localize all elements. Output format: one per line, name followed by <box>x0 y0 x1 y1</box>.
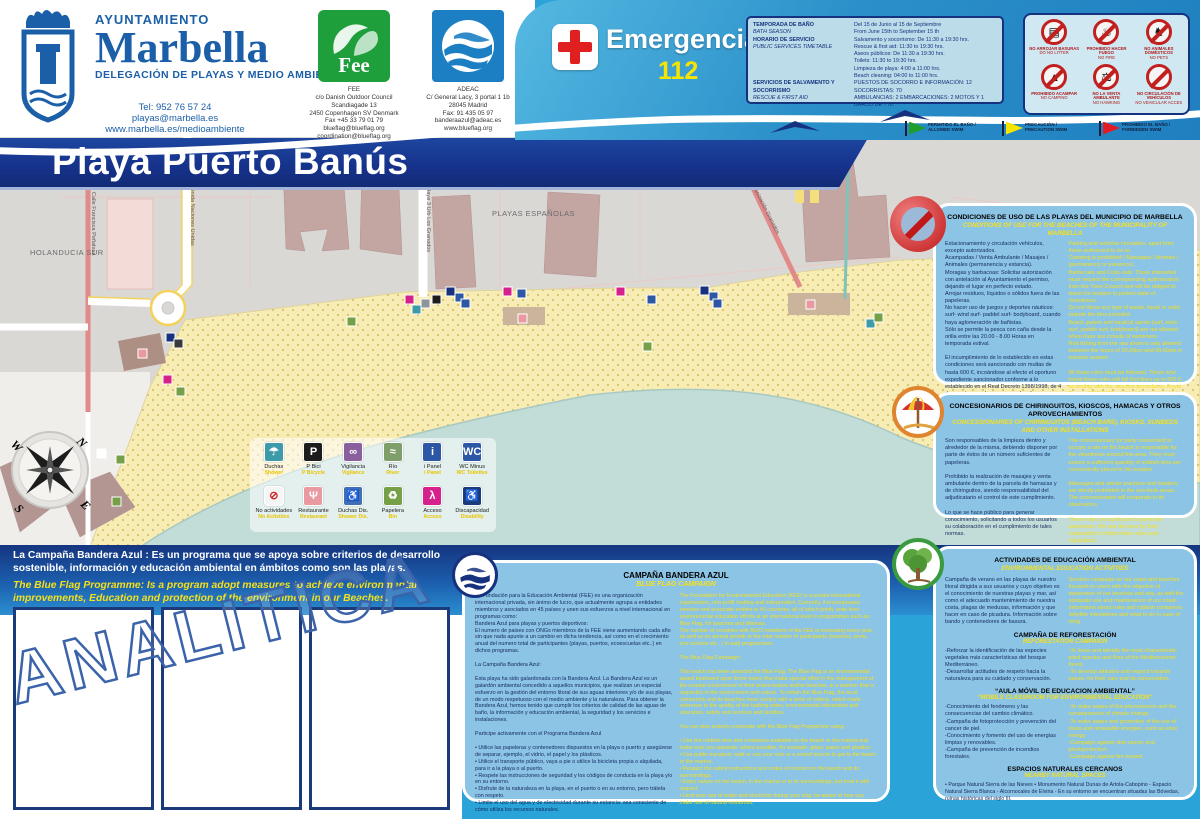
map-legend: ☂ Duchas ShowerP P Bici P Bicycle∞ Vigil… <box>250 438 496 532</box>
swim-flag: PROHIBIDO EL BAÑO / FORBIDDEN SWIM <box>1099 121 1184 136</box>
prohibition-item: ⚖ NO LA VENTA AMBULANTE NO HAWKING <box>1080 64 1132 109</box>
map-pink-building <box>107 199 153 289</box>
acceso-icon: λ <box>422 486 442 506</box>
schedule-row-label: HORARIO DE SERVICIO PUBLIC SERVICES TIME… <box>753 37 848 81</box>
map-amenity-marker <box>421 299 430 308</box>
legend-label-en: Shower <box>264 470 283 476</box>
page-title: Playa Puerto Banús <box>52 141 409 183</box>
blue-flag-round-logo <box>452 552 498 598</box>
legend-item: ≈ Río River <box>373 442 413 486</box>
emergency-block: Emergencias 112 <box>552 24 774 86</box>
schedule-row-label: SERVICIOS DE SALVAMENTO Y SOCORRISMO RES… <box>753 80 848 109</box>
map-amenity-marker <box>138 349 147 358</box>
no-pets-icon: ♞ <box>1146 19 1172 45</box>
prohibition-item: ▲ PROHIBIDO ACAMPAR NO CAMPING <box>1028 64 1080 109</box>
legend-label-en: i Panel <box>424 470 441 476</box>
map-amenity-marker <box>713 299 722 308</box>
legend-label-en: Shower Dis. <box>338 514 368 520</box>
flag-label: PERMITIDO EL BAÑO / ALLOWED SWIM <box>928 123 990 133</box>
campaign-title: CAMPAÑA BANDERA AZUL <box>475 571 877 581</box>
blue-flag-campaign-panel: CAMPAÑA BANDERA AZUL BLUE FLAG CAMPAIGN … <box>462 560 890 802</box>
legend-item: ∞ Vigilancia Vigilance <box>333 442 373 486</box>
prohibition-item: NO CIRCULACIÓN DE VEHÍCULOS NO VEHICULAR… <box>1133 64 1185 109</box>
conditions-panel: CONDICIONES DE USO DE LAS PLAYAS DEL MUN… <box>933 203 1197 385</box>
schedule-row-label: TEMPORADA DE BAÑO BATH SEASON <box>753 22 848 37</box>
legend-label-en: Access <box>423 514 441 520</box>
legend-label-en: River <box>386 470 399 476</box>
beach-information-sign: HOLANDUCIA SUR PLAYAS ESPAÑOLAS Calle Fr… <box>0 0 1200 819</box>
i-panel-icon: i <box>422 442 442 462</box>
map-amenity-marker <box>112 497 121 506</box>
no-vehicular-acces-icon <box>1146 64 1172 90</box>
natural-spaces-subtitle: NEARBY NATURAL SPACES <box>945 773 1185 779</box>
duchas-icon: ☂ <box>264 442 284 462</box>
map-amenity-marker <box>647 295 656 304</box>
flag-pennant-icon <box>1006 122 1023 135</box>
prohibition-item: ♞ NO ANIMALES DOMÉSTICOS NO PETS <box>1133 19 1185 64</box>
area-label-center: PLAYAS ESPAÑOLAS <box>492 209 575 218</box>
education-intro-es: Campaña de verano en las playas de nuest… <box>945 577 1062 627</box>
street-label-francisca: Calle Francisca Peñalosa <box>90 192 96 256</box>
map-amenity-marker <box>405 295 414 304</box>
schedule-row-value: Del 15 de Junio al 15 de Septiembre From… <box>854 22 997 37</box>
reforestation-title: CAMPAÑA DE REFORESTACIÓN <box>945 632 1185 639</box>
map-amenity-marker <box>347 317 356 326</box>
flag-pole <box>1002 121 1004 136</box>
restaurante-icon: Ψ <box>303 486 323 506</box>
blue-flag-logo <box>432 10 504 82</box>
map-amenity-marker <box>412 305 421 314</box>
natural-spaces-title: ESPACIOS NATURALES CERCANOS <box>945 766 1185 773</box>
concessions-panel: CONCESIONARIOS DE CHIRINGUITOS, KIOSCOS,… <box>933 392 1197 518</box>
p-bici-icon: P <box>303 442 323 462</box>
map-amenity-marker <box>874 313 883 322</box>
flag-label: PROHIBIDO EL BAÑO / FORBIDDEN SWIM <box>1122 123 1184 133</box>
conditions-text-es: Estacionamiento y circulación vehículos,… <box>945 241 1062 412</box>
no-camping-icon: ▲ <box>1041 64 1067 90</box>
concessions-title: CONCESIONARIOS DE CHIRINGUITOS, KIOSCOS,… <box>945 403 1185 419</box>
education-title: ACTIVIDADES DE EDUCACIÓN AMBIENTAL <box>945 557 1185 565</box>
legend-label-en: Vigilance <box>342 470 365 476</box>
fee-leaf-icon <box>328 18 380 60</box>
map-amenity-marker <box>97 449 106 458</box>
campaign-subtitle: BLUE FLAG CAMPAIGN <box>475 581 877 589</box>
legend-label-en: No Activities <box>258 514 289 520</box>
swim-flag: PRECAUCIÓN / PRECAUTION SWIM <box>1002 121 1087 136</box>
flag-pennant-icon <box>1103 122 1120 135</box>
mobile-classroom-text-es: -Conocimiento del fenómeno y las consecu… <box>945 704 1062 761</box>
map-amenity-marker <box>518 314 527 323</box>
legend-item: P P Bici P Bicycle <box>294 442 334 486</box>
do-no-litter-icon: ▤ <box>1041 19 1067 45</box>
campaign-text-en: The Foundation for Environmental Educati… <box>680 593 878 814</box>
legend-label-en: P Bicycle <box>302 470 325 476</box>
mobile-classroom-subtitle: “MOBILE CLASSROOM FOR ENVIRONMENTAL EDUC… <box>945 695 1185 701</box>
vigilancia-icon: ∞ <box>343 442 363 462</box>
r-o-icon: ≈ <box>383 442 403 462</box>
map-amenity-marker <box>432 295 441 304</box>
map-amenity-marker <box>116 455 125 464</box>
legend-item: ⊘ No actividades No Activities <box>254 486 294 530</box>
concessions-subtitle: CONCESSIONARIES OF CHIRINGUITOS (BEACH B… <box>945 419 1185 434</box>
red-cross-icon <box>552 24 598 70</box>
street-label-naciones: Avenida Naciones Unidas <box>189 182 195 246</box>
no-fire-icon: ♨ <box>1093 19 1119 45</box>
legend-item: ☂ Duchas Shower <box>254 442 294 486</box>
legend-item: i i Panel i Panel <box>413 442 453 486</box>
service-schedule-table: TEMPORADA DE BAÑO BATH SEASON Del 15 de … <box>746 16 1004 104</box>
no-entry-icon <box>890 196 946 252</box>
reforestation-text-en: -To know and identify the most character… <box>1069 648 1186 684</box>
mobile-classroom-text-en: -To make aware of the phenomenon and the… <box>1069 704 1186 761</box>
adeac-address: ADEAC C/ General Lacy, 3 portal 1 1b 280… <box>402 86 534 133</box>
map-beach-bar-3 <box>788 293 850 315</box>
title-banner: Playa Puerto Banús <box>0 138 868 190</box>
map-amenity-marker <box>163 375 172 384</box>
map-roundabout <box>151 291 185 325</box>
beach-umbrella-icon <box>892 386 944 438</box>
papelera-icon: ♻ <box>383 486 403 506</box>
no-hawking-icon: ⚖ <box>1093 64 1119 90</box>
mobile-classroom-title: “AULA MÓVIL DE EDUCACION AMBIENTAL” <box>945 688 1185 695</box>
flag-label: PRECAUCIÓN / PRECAUTION SWIM <box>1025 123 1087 133</box>
prohibition-item: ▤ NO ARROJAR BASURAS DO NO LITTER <box>1028 19 1080 64</box>
marbella-contact: Tel: 952 76 57 24 playas@marbella.es www… <box>60 103 290 136</box>
legend-item: Ψ Restaurante Restaurant <box>294 486 334 530</box>
discapacidad-icon: ♿ <box>462 486 482 506</box>
map-amenity-marker <box>503 287 512 296</box>
map-amenity-marker <box>174 339 183 348</box>
map-amenity-marker <box>176 387 185 396</box>
reforestation-text-es: -Reforzar la identificación de las espec… <box>945 648 1062 684</box>
schedule-row-value: PUESTOS DE SOCORRO E INFORMACIÓN: 12 SOC… <box>854 80 997 109</box>
prohibition-item: ♨ PROHIBIDO HACER FUEGO NO FIRE <box>1080 19 1132 64</box>
conditions-title: CONDICIONES DE USO DE LAS PLAYAS DEL MUN… <box>945 214 1185 222</box>
wc-minus-icon: WC <box>462 442 482 462</box>
flag-pole <box>905 121 907 136</box>
tree-icon <box>892 538 944 590</box>
reforestation-subtitle: REFORESTATION CAMPAIGN <box>945 639 1185 645</box>
campaign-text-es: La Fundación para la Educación Ambiental… <box>475 593 673 814</box>
map-amenity-marker <box>643 342 652 351</box>
swim-flag: PERMITIDO EL BAÑO / ALLOWED SWIM <box>905 121 990 136</box>
map-amenity-marker <box>446 287 455 296</box>
prohibition-panel: ▤ NO ARROJAR BASURAS DO NO LITTER♨ PROHI… <box>1023 13 1190 115</box>
legend-item: ♿ Duchas Dis. Shower Dis. <box>333 486 373 530</box>
natural-spaces-text: • Parque Natural Sierra de las Nieves • … <box>945 782 1185 803</box>
legend-item: WC WC Minus WC Toilettes <box>452 442 492 486</box>
legend-item: ♻ Papelera Bin <box>373 486 413 530</box>
conditions-text-en: Parking and vehicles circulation, apart … <box>1069 241 1186 412</box>
education-subtitle: ENVIRONMENTAL EDUCATION ACTIVITIES <box>945 565 1185 572</box>
map-amenity-marker <box>806 300 815 309</box>
conditions-subtitle: CONDITIONS OF USE FOR THE BEACHES OF THE… <box>945 222 1185 237</box>
fee-logo: Fee <box>318 10 390 82</box>
education-intro-en: Summer campaign on our coast and beaches… <box>1069 577 1186 627</box>
fee-address: FEE c/o Danish Outdoor Council Scandiaga… <box>288 86 420 141</box>
legend-label-en: Restaurant <box>300 514 327 520</box>
legend-label-en: Bin <box>389 514 397 520</box>
map-amenity-marker <box>517 289 526 298</box>
schedule-row-value: Salvamento y socorrismo: De 11:30 a 19:3… <box>854 37 997 81</box>
flag-pennant-icon <box>909 122 926 135</box>
legend-label-en: WC Toilettes <box>457 470 488 476</box>
map-amenity-marker <box>700 286 709 295</box>
swim-flag-legend: PERMITIDO EL BAÑO / ALLOWED SWIM PRECAUC… <box>905 118 1200 138</box>
duchas-dis--icon: ♿ <box>343 486 363 506</box>
legend-item: ♿ Discapacidad Disability <box>452 486 492 530</box>
legend-item: λ Acceso Access <box>413 486 453 530</box>
concessions-text-es: Son responsables de la limpieza dentro y… <box>945 438 1062 545</box>
map-amenity-marker <box>616 287 625 296</box>
no-actividades-icon: ⊘ <box>264 486 284 506</box>
concessions-text-en: The concessionary (or party concerned) t… <box>1069 438 1186 545</box>
legend-label-en: Disability <box>461 514 484 520</box>
education-panel: ACTIVIDADES DE EDUCACIÓN AMBIENTAL ENVIR… <box>933 546 1197 800</box>
flag-pole <box>1099 121 1101 136</box>
map-amenity-marker <box>461 299 470 308</box>
